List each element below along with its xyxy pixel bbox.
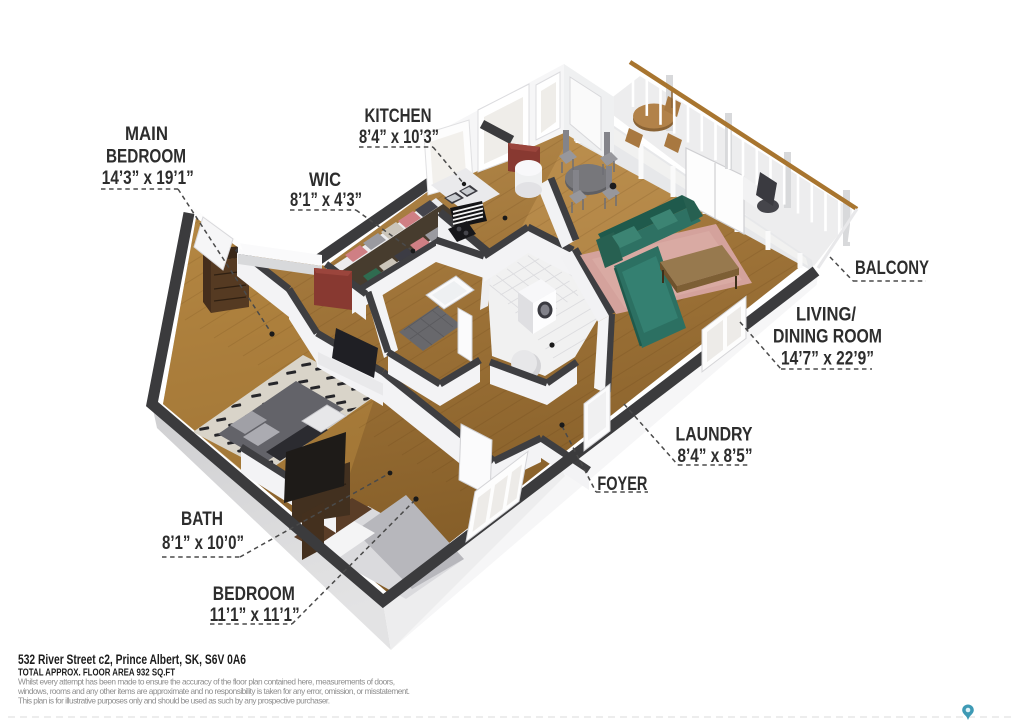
svg-text:14’7” x 22’9”: 14’7” x 22’9” bbox=[781, 348, 874, 370]
svg-text:Whilst every attempt has been: Whilst every attempt has been made to en… bbox=[18, 677, 395, 687]
svg-text:8’1” x 10’0”: 8’1” x 10’0” bbox=[162, 532, 244, 554]
svg-text:11’1” x 11’1”: 11’1” x 11’1” bbox=[210, 604, 300, 626]
svg-text:14’3” x 19’1”: 14’3” x 19’1” bbox=[102, 167, 194, 189]
svg-text:8’4” x 10’3”: 8’4” x 10’3” bbox=[359, 126, 439, 148]
svg-text:WIC: WIC bbox=[309, 169, 341, 191]
svg-text:windows, rooms and any other i: windows, rooms and any other items are a… bbox=[17, 686, 410, 696]
svg-text:DINING ROOM: DINING ROOM bbox=[773, 326, 882, 348]
svg-text:BEDROOM: BEDROOM bbox=[106, 146, 186, 168]
svg-text:KITCHEN: KITCHEN bbox=[365, 105, 432, 127]
svg-text:BALCONY: BALCONY bbox=[855, 257, 929, 279]
svg-text:BATH: BATH bbox=[181, 508, 223, 530]
svg-text:8’1” x 4’3”: 8’1” x 4’3” bbox=[290, 189, 362, 211]
svg-text:FOYER: FOYER bbox=[597, 473, 647, 495]
svg-text:8’4” x 8’5”: 8’4” x 8’5” bbox=[678, 445, 753, 467]
svg-text:BEDROOM: BEDROOM bbox=[213, 583, 295, 605]
svg-text:532 River Street c2, Prince Al: 532 River Street c2, Prince Albert, SK, … bbox=[18, 652, 246, 667]
svg-text:LAUNDRY: LAUNDRY bbox=[676, 424, 753, 446]
svg-text:MAIN: MAIN bbox=[125, 123, 168, 145]
svg-text:This plan is for illustrative: This plan is for illustrative purposes o… bbox=[18, 696, 330, 706]
svg-text:LIVING/: LIVING/ bbox=[796, 304, 856, 326]
